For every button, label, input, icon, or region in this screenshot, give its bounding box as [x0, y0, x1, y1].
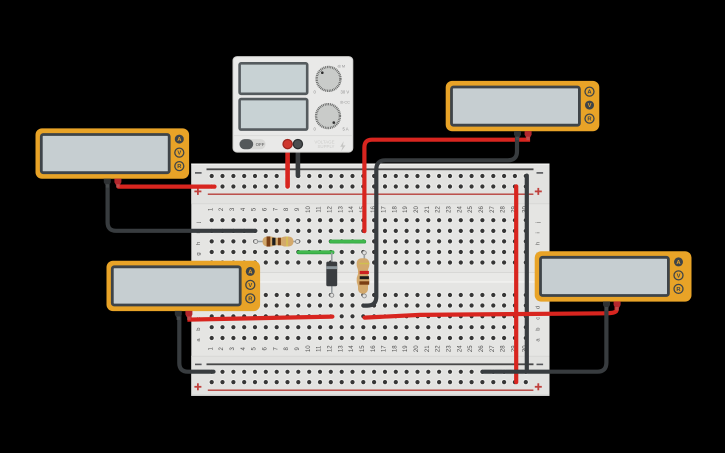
svg-text:17: 17: [382, 206, 388, 213]
svg-text:b: b: [196, 328, 202, 331]
svg-text:24: 24: [457, 345, 463, 352]
svg-text:17: 17: [382, 345, 388, 352]
svg-text:24: 24: [457, 206, 463, 213]
svg-text:V: V: [588, 103, 592, 109]
svg-text:◎ M: ◎ M: [338, 64, 346, 68]
svg-text:14: 14: [349, 345, 355, 352]
svg-text:d: d: [536, 306, 542, 309]
svg-text:28: 28: [501, 206, 507, 213]
svg-text:15: 15: [360, 345, 366, 352]
svg-text:16: 16: [371, 345, 377, 352]
svg-text:18: 18: [392, 206, 398, 213]
svg-text:h: h: [536, 242, 542, 245]
svg-text:V: V: [677, 273, 681, 279]
svg-text:h: h: [196, 242, 202, 245]
svg-text:25: 25: [468, 206, 474, 213]
svg-text:c: c: [536, 317, 542, 320]
svg-text:20: 20: [414, 345, 420, 352]
svg-text:j: j: [536, 222, 542, 224]
svg-text:22: 22: [436, 206, 442, 213]
svg-text:21: 21: [425, 345, 431, 352]
svg-text:19: 19: [403, 206, 409, 213]
svg-text:20: 20: [414, 206, 420, 213]
svg-text:27: 27: [490, 206, 496, 213]
svg-text:23: 23: [447, 206, 453, 213]
svg-text:26: 26: [479, 345, 485, 352]
svg-text:11: 11: [317, 206, 323, 213]
svg-text:11: 11: [317, 345, 323, 352]
svg-text:5 A: 5 A: [343, 126, 349, 131]
svg-text:13: 13: [338, 345, 344, 352]
svg-text:13: 13: [338, 206, 344, 213]
svg-text:21: 21: [425, 206, 431, 213]
svg-text:10: 10: [306, 206, 312, 213]
svg-text:i: i: [536, 232, 542, 233]
svg-text:g: g: [196, 252, 202, 255]
svg-text:V: V: [248, 283, 252, 289]
svg-text:OFF: OFF: [256, 142, 265, 147]
svg-text:b: b: [536, 328, 542, 331]
svg-text:22: 22: [436, 345, 442, 352]
svg-text:14: 14: [349, 206, 355, 213]
svg-text:23: 23: [447, 345, 453, 352]
svg-text:V: V: [177, 151, 181, 157]
svg-text:j: j: [196, 222, 202, 224]
svg-text:SUPPLY: SUPPLY: [317, 144, 334, 149]
svg-text:10: 10: [306, 345, 312, 352]
svg-text:12: 12: [327, 345, 333, 352]
svg-text:28: 28: [501, 345, 507, 352]
svg-text:19: 19: [403, 345, 409, 352]
svg-text:26: 26: [479, 206, 485, 213]
svg-text:25: 25: [468, 345, 474, 352]
svg-text:12: 12: [327, 206, 333, 213]
svg-text:18: 18: [392, 345, 398, 352]
svg-text:30 V: 30 V: [341, 90, 350, 95]
svg-text:27: 27: [490, 345, 496, 352]
svg-text:◎ CC: ◎ CC: [340, 100, 350, 104]
